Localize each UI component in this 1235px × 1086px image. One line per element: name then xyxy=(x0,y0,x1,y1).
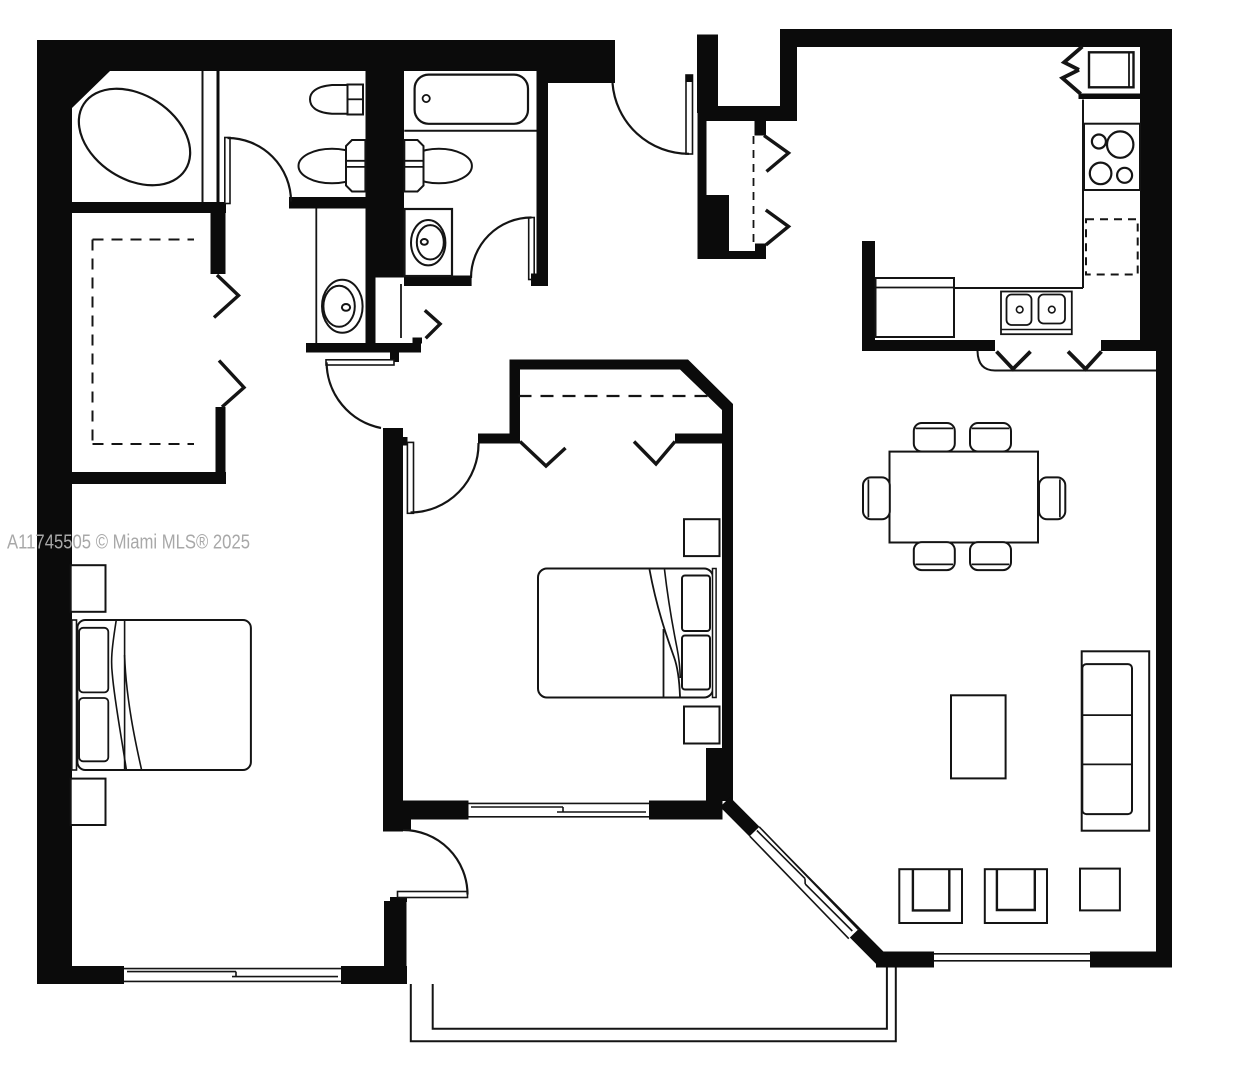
svg-text:A11745505 © Miami MLS® 2025: A11745505 © Miami MLS® 2025 xyxy=(7,531,250,554)
